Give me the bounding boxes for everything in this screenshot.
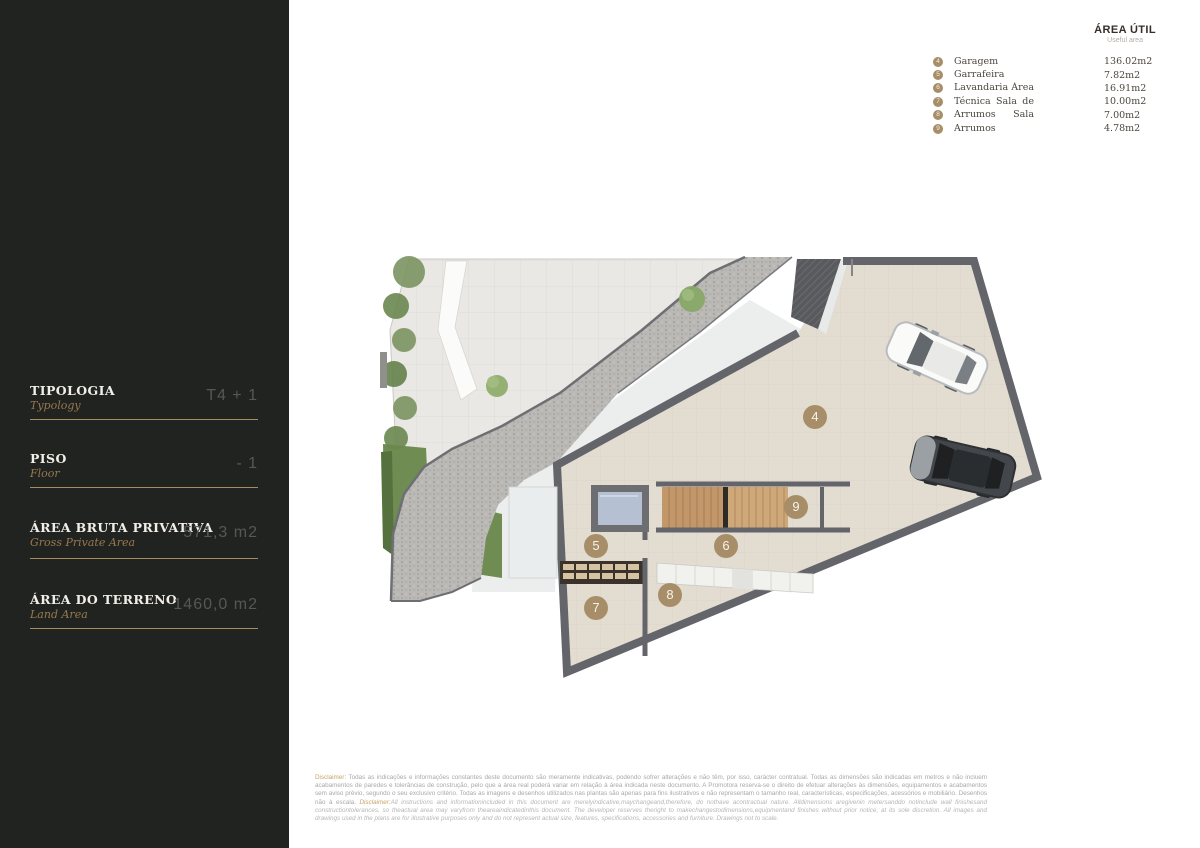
legend-value: 7.00m2 — [1104, 110, 1140, 121]
gross-area-value: 571,3 m2 — [183, 524, 258, 542]
legend-bullet: 5 — [933, 70, 943, 80]
wine-rack — [560, 561, 644, 584]
legend-bullet: 9 — [933, 124, 943, 134]
legend-value: 136.02m2 — [1104, 56, 1152, 67]
legend-bullet: 8 — [933, 110, 943, 120]
disclaimer-pt-label: Disclaimer: — [315, 774, 346, 781]
plan-marker-4: 4 — [803, 405, 827, 429]
legend-row: 4 Garagem 136.02m2 — [930, 55, 1156, 68]
legend-value: 7.82m2 — [1104, 70, 1140, 81]
legend-value: 16.91m2 — [1104, 83, 1146, 94]
legend-label: Lavandaria Área — [954, 82, 1034, 94]
legend-label: Garrafeira — [954, 69, 1034, 81]
sidebar-section-land-area: ÁREA DO TERRENO Land Area 1460,0 m2 — [30, 592, 258, 629]
plan-marker-5: 5 — [584, 534, 608, 558]
sidebar-section-typology: TIPOLOGIA Typology T4 + 1 — [30, 383, 258, 420]
disclaimer-en-text: All instructions and informationincluded… — [315, 799, 987, 822]
legend-row: 8 Arrumos Sala de 7.00m2 — [930, 109, 1156, 122]
legend-label: Técnica Sala de — [954, 96, 1034, 108]
sidebar-section-gross-area: ÁREA BRUTA PRIVATIVA Gross Private Area … — [30, 520, 258, 559]
plan-marker-9: 9 — [784, 495, 808, 519]
legend-row: 6 Lavandaria Área 16.91m2 — [930, 82, 1156, 95]
disclaimer-en-label: Disclaimer: — [359, 799, 390, 806]
staircase — [656, 484, 850, 530]
sidebar: TIPOLOGIA Typology T4 + 1 PISO Floor - 1… — [0, 0, 289, 848]
plan-marker-6: 6 — [714, 534, 738, 558]
legend-bullet: 6 — [933, 83, 943, 93]
skylight-box — [591, 485, 649, 532]
floor-sublabel: Floor — [30, 467, 258, 480]
legend-title: ÁREA ÚTIL — [1094, 24, 1156, 36]
legend-value: 4.78m2 — [1104, 123, 1140, 134]
floor-label: PISO — [30, 451, 258, 466]
legend-bullet: 7 — [933, 97, 943, 107]
legend-subtitle: Useful area — [1094, 37, 1156, 44]
sidebar-section-floor: PISO Floor - 1 — [30, 451, 258, 488]
legend-row: 9 Arrumos 4.78m2 — [930, 122, 1156, 135]
plan-marker-7: 7 — [584, 596, 608, 620]
legend-bullet: 4 — [933, 57, 943, 67]
legend-row: 7 Técnica Sala de 10.00m2 — [930, 95, 1156, 108]
land-area-value: 1460,0 m2 — [173, 596, 258, 614]
legend-label: Garagem — [954, 56, 1034, 68]
legend-row: 5 Garrafeira 7.82m2 — [930, 68, 1156, 81]
retaining-wall — [380, 352, 387, 388]
disclaimer: Disclaimer: Todas as indicações e inform… — [315, 774, 987, 823]
legend-label: Arrumos — [954, 123, 1034, 135]
plan-marker-8: 8 — [658, 583, 682, 607]
brochure-page: 456789 TIPOLOGIA Typology T4 + 1 PISO Fl… — [0, 0, 1200, 848]
lightwell — [509, 487, 557, 578]
legend-label: Arrumos Sala de — [954, 109, 1034, 121]
legend-value: 10.00m2 — [1104, 96, 1146, 107]
area-legend: ÁREA ÚTIL Useful area 4 Garagem 136.02m2… — [930, 24, 1156, 135]
floor-value: - 1 — [236, 455, 258, 473]
typology-value: T4 + 1 — [206, 387, 258, 405]
